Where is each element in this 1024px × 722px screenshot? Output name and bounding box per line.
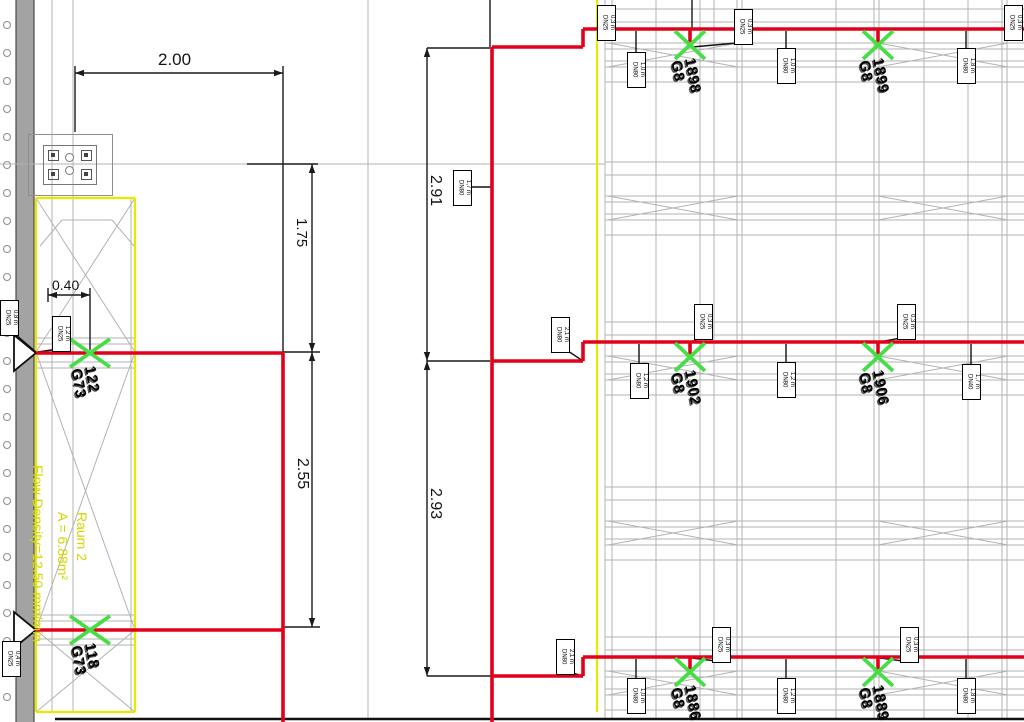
pipe-size-tag: 1,2 mDN80 [630, 363, 649, 399]
pipe-size-tag: 1,0 mDN80 [777, 48, 796, 84]
dimension-label: 2.93 [426, 488, 444, 519]
dimension-arrow-icon [309, 343, 315, 352]
dimension-arrow-icon [309, 164, 315, 173]
wall-anchor-icon [4, 162, 11, 169]
pipe-length-label: 0,8 m [11, 301, 19, 335]
wall-anchor-icon [4, 582, 11, 589]
room-annotation: Raum 2 A = 6.88m² [53, 512, 91, 580]
flow-density-annotation: Flow Density=12.50 mm/min [28, 465, 47, 642]
wall-anchor-icon [4, 22, 11, 29]
sprinkler-label: 122G73 [68, 365, 101, 399]
pipe-size-tag: 1,0 mDN80 [627, 52, 646, 88]
pipe-length-label: 1,8 m [968, 49, 976, 83]
pipe-diameter-label: DN80 [456, 171, 464, 205]
pipe-length-label: 0,3 m [911, 628, 919, 662]
room-area: A = 6.88m² [53, 512, 72, 580]
sprinkler-label: 1899G8 [856, 57, 890, 97]
pipe-length-label: 1,0 m [788, 49, 796, 83]
pipe-size-tag: 0,3 mDN25 [897, 304, 916, 340]
dimension-label: 2.91 [426, 175, 444, 206]
pipe-length-label: 0,3 m [723, 628, 731, 662]
dimension-arrow-icon [424, 361, 430, 370]
pipe-diameter-label: DN25 [903, 628, 911, 662]
pipe-size-tag: 1,7 mDN80 [453, 170, 472, 206]
pipe-size-tag: 1,7 mDN40 [962, 364, 981, 400]
dimension-arrow-icon [309, 618, 315, 627]
room-label: Raum 2 [72, 512, 91, 580]
pipe-diameter-label: DN80 [780, 363, 788, 397]
pipe-length-label: 1,0 m [638, 679, 646, 713]
junction-box-cell-icon [81, 169, 92, 180]
cad-drawing-canvas: Flow Density=12.50 mm/min Raum 2 A = 6.8… [0, 0, 1024, 722]
pipe-diameter-label: DN25 [5, 642, 13, 676]
wall-anchor-icon [4, 526, 11, 533]
dimension-arrow-icon [424, 352, 430, 361]
pipe-diameter-label: DN80 [554, 318, 562, 352]
dimension-arrow-icon [274, 70, 283, 76]
pipe-diameter-label: DN25 [737, 10, 745, 44]
cad-linework [0, 0, 1024, 722]
sprinkler-label: 1898G8 [668, 57, 702, 97]
pipe-size-tag: 0,3 mDN25 [694, 304, 713, 340]
wall-anchor-icon [4, 50, 11, 57]
pipe-size-tag: 1,8 mDN80 [957, 678, 976, 714]
wall-anchor-icon [4, 470, 11, 477]
pipe-size-tag: 1,8 mDN80 [957, 48, 976, 84]
pipe-size-tag: 0,3 mDN25 [1004, 5, 1023, 41]
pipe-length-label: 0,3 m [608, 6, 616, 40]
pipe-length-label: 1,8 m [968, 679, 976, 713]
junction-box-cell-icon [48, 150, 59, 161]
dimension-label: 2.55 [293, 458, 311, 489]
pipe-length-label: 0,3 m [1015, 6, 1023, 40]
wall-anchor-icon [4, 106, 11, 113]
pipe-diameter-label: DN80 [633, 364, 641, 398]
pipe-size-tag: 0,3 mDN25 [900, 627, 919, 663]
junction-box-cell-icon [81, 150, 92, 161]
pipe-diameter-label: DN80 [960, 679, 968, 713]
junction-box-cell-icon [48, 169, 59, 180]
pipe-length-label: 2,1 m [567, 640, 575, 674]
sprinkler-label: 1886G8 [668, 684, 702, 722]
pipe-length-label: 0,3 m [908, 305, 916, 339]
pipe-size-tag: 1,2 mDN25 [52, 316, 71, 352]
dimension-arrow-icon [81, 292, 90, 298]
junction-box-circle-icon [65, 166, 74, 175]
wall-anchor-icon [4, 358, 11, 365]
pipe-diameter-label: DN80 [780, 679, 788, 713]
pipe-size-tag: 2,1 mDN80 [556, 639, 575, 675]
pipe-size-tag: 1,2 mDN80 [777, 362, 796, 398]
pipe-length-label: 0,3 m [705, 305, 713, 339]
wall-anchor-icon [4, 78, 11, 85]
wall-anchor-icon [4, 610, 11, 617]
wall-anchor-icon [4, 246, 11, 253]
wall-anchor-icon [4, 190, 11, 197]
sprinkler-label: 1889G8 [856, 684, 890, 722]
pipe-length-label: 1,2 m [788, 679, 796, 713]
pipe-size-tag: 1,0 mDN80 [627, 678, 646, 714]
wall-anchor-icon [4, 554, 11, 561]
pipe-diameter-label: DN25 [900, 305, 908, 339]
dimension-label: 1.75 [293, 218, 310, 247]
pipe-size-tag: 0,3 mDN25 [712, 627, 731, 663]
pipe-diameter-label: DN25 [697, 305, 705, 339]
wall-anchor-icon [4, 694, 11, 701]
junction-box-inner [43, 145, 97, 185]
pipe-diameter-label: DN80 [630, 679, 638, 713]
pipe-length-label: 0,3 m [745, 10, 753, 44]
pipe-diameter-label: DN80 [780, 49, 788, 83]
dimension-label: 2.00 [158, 50, 191, 70]
pipe-size-tag: 0,4 mDN25 [2, 641, 21, 677]
wall-anchor-icon [4, 414, 11, 421]
pipe-size-tag: 0,8 mDN25 [0, 300, 19, 336]
sprinkler-label: 118G73 [68, 642, 101, 676]
sprinkler-model: G73 [68, 367, 87, 399]
pipe-length-label: 1,2 m [788, 363, 796, 397]
wall-anchor-icon [4, 218, 11, 225]
dimension-arrow-icon [424, 48, 430, 57]
junction-box-symbol [28, 134, 113, 196]
pipe-length-label: 2,1 m [562, 318, 570, 352]
pipe-size-tag: 2,1 mDN80 [551, 317, 570, 353]
sprinkler-label: 1902G8 [668, 369, 702, 409]
dimension-arrow-icon [309, 352, 315, 361]
pipe-diameter-label: DN80 [559, 640, 567, 674]
wall-anchor-icon [4, 498, 11, 505]
dimension-arrow-icon [424, 667, 430, 676]
pipe-diameter-label: DN25 [715, 628, 723, 662]
dimension-arrow-icon [75, 70, 84, 76]
pipe-diameter-label: DN80 [960, 49, 968, 83]
wall-anchor-icon [4, 442, 11, 449]
wall-anchor-icon [4, 134, 11, 141]
pipe-size-tag: 0,3 mDN25 [597, 5, 616, 41]
pipe-length-label: 0,4 m [13, 642, 21, 676]
pipe-size-tag: 1,2 mDN80 [777, 678, 796, 714]
pipe-diameter-label: DN25 [3, 301, 11, 335]
sprinkler-label: 1906G8 [856, 369, 890, 409]
pipe-length-label: 1,2 m [641, 364, 649, 398]
pipe-diameter-label: DN25 [600, 6, 608, 40]
pipe-length-label: 1,7 m [973, 365, 981, 399]
pipe-length-label: 1,2 m [63, 317, 71, 351]
sprinkler-model: G73 [68, 644, 87, 676]
dimension-label: 0.40 [52, 277, 79, 293]
pipe-diameter-label: DN25 [1007, 6, 1015, 40]
wall-anchor-icon [4, 386, 11, 393]
pipe-diameter-label: DN25 [55, 317, 63, 351]
pipe-diameter-label: DN80 [630, 53, 638, 87]
junction-box-circle-icon [65, 153, 74, 162]
pipe-size-tag: 0,3 mDN25 [734, 9, 753, 45]
pipe-length-label: 1,7 m [464, 171, 472, 205]
wall-anchor-icon [4, 274, 11, 281]
pipe-diameter-label: DN40 [965, 365, 973, 399]
pipe-length-label: 1,0 m [638, 53, 646, 87]
